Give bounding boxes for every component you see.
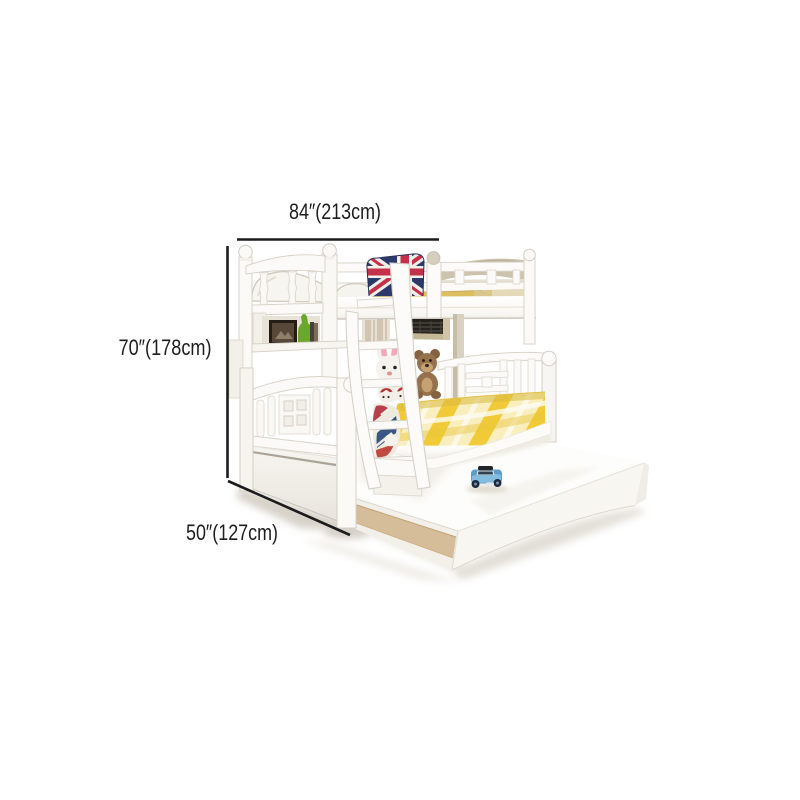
svg-text:70″(178cm): 70″(178cm)	[119, 335, 212, 360]
svg-text:84″(213cm): 84″(213cm)	[289, 199, 381, 224]
svg-text:50″(127cm): 50″(127cm)	[186, 520, 278, 545]
